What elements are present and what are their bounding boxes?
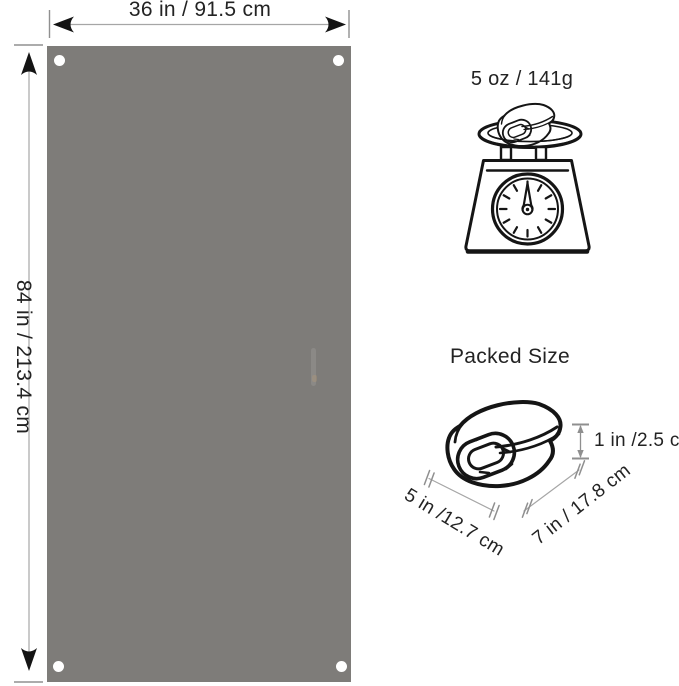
kitchen-scale-icon [466,104,589,251]
grommet-top-right [333,55,344,66]
packed-width-label: 5 in /12.7 cm [393,480,516,566]
scale-body [466,161,589,252]
dial-ticks [500,182,555,237]
grommet-bottom-left [53,661,64,672]
flat-width-label: 36 in / 91.5 cm [90,0,310,22]
grommet-bottom-right [336,661,347,672]
scale-dial [493,174,563,244]
packed-height-label: 1 in /2.5 cm [594,430,679,452]
packed-depth-label: 7 in / 17.8 cm [524,456,640,553]
rolled-blanket-on-scale-icon [498,104,555,146]
panel-crease-dot [312,375,317,382]
grommet-top-left [54,55,65,66]
weight-label: 5 oz / 141g [422,68,622,91]
packed-size-title: Packed Size [410,345,610,369]
flat-height-label: 84 in / 213.4 cm [11,267,35,447]
dial-needle [523,184,533,214]
scale-plate [479,121,581,148]
packed-height-marker [572,425,589,459]
flat-panel [47,46,351,682]
product-dimension-diagram: 36 in / 91.5 cm 84 in / 213.4 cm 5 oz / … [0,0,679,686]
packed-blanket-icon [447,402,560,486]
